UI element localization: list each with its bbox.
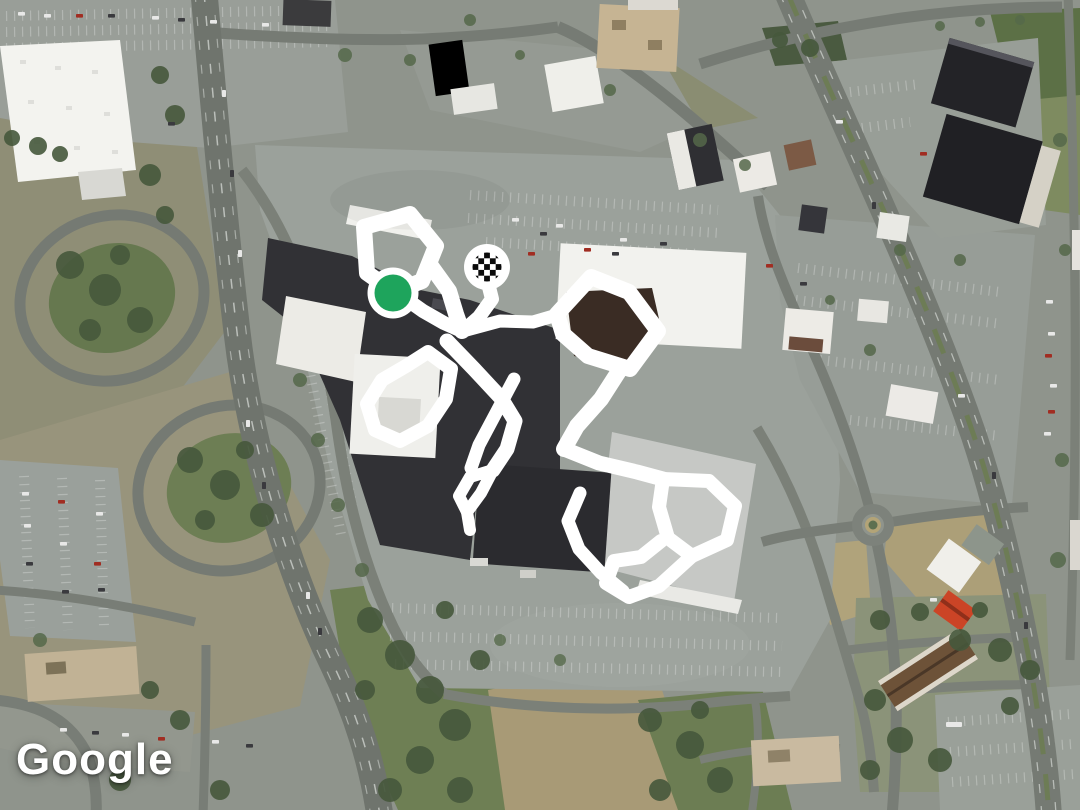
start-marker[interactable] [368,268,419,319]
satellite-map [0,0,1080,810]
google-watermark: Google [16,738,174,782]
map-container[interactable]: Google [0,0,1080,810]
satellite-imagery [0,0,1080,810]
start-marker-dot [375,275,412,312]
finish-marker[interactable] [464,244,510,290]
checkered-flag-icon [473,253,502,282]
